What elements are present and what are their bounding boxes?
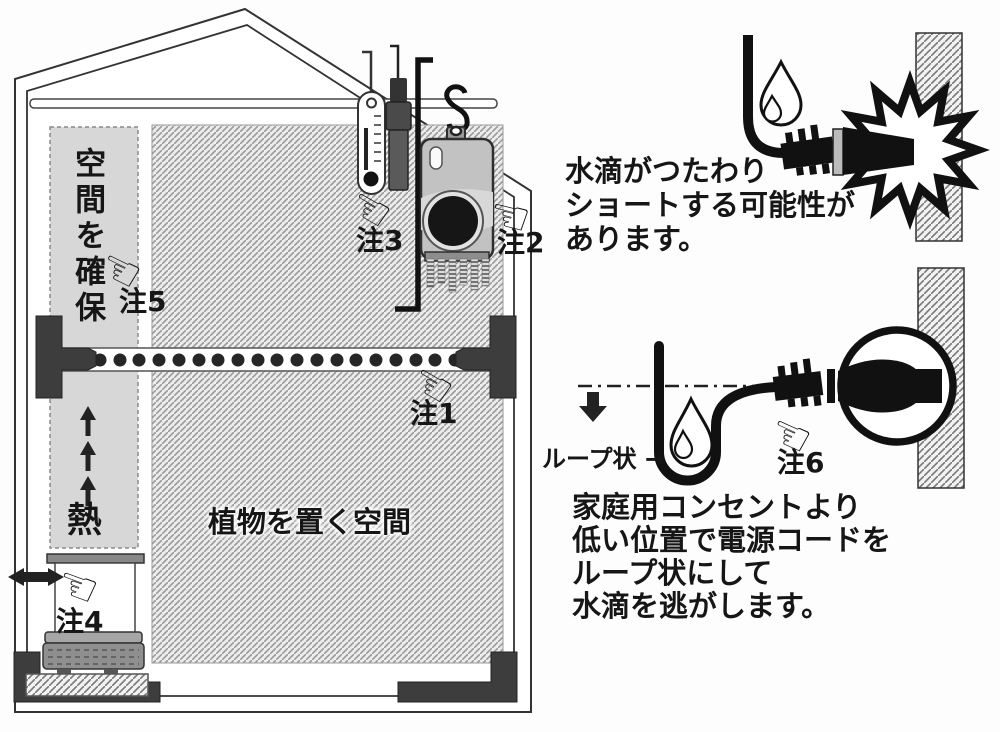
short-circuit-warning-line3: あります。 [565,224,707,256]
note4-label: 注4 [56,607,103,638]
down-arrow-icon [579,392,607,422]
loop-cord-ribs [771,357,824,410]
short-circuit-warning-line2: ショートする可能性が [565,190,855,222]
short-circuit-warning-line1: 水滴がつたわり [565,156,768,188]
diagram-artwork [0,0,1000,732]
thermometer [358,52,385,194]
water-droplet-icon-top [761,62,801,125]
heater-unit [43,632,144,675]
heater-platform [26,674,148,696]
manual-illustration: 空間を確保 ☜ 注5 ☜ 注3 ☜ 注2 ☜ 注1 熱 植物を置く空間 ☜ 注4… [0,0,1000,732]
hanging-rail [30,99,497,108]
drip-loop-text-line3: ループ状にして [572,558,772,590]
note6-label: 注6 [777,448,824,479]
sensor-probe [386,46,411,190]
drip-loop-text-line1: 家庭用コンセントより [572,492,861,524]
note5-label: 注5 [119,287,166,318]
note1-label: 注1 [410,399,457,430]
clearance-cap [47,554,144,563]
clearance-label: 空間を確保 [70,147,104,327]
water-droplet-icon-bottom [671,399,712,466]
loop-shape-label: ループ状 → [542,446,665,472]
plant-area-label: 植物を置く空間 [208,507,411,539]
heat-label: 熱 [67,502,102,541]
note3-label: 注3 [356,226,403,257]
thermostat-device [421,127,493,261]
note2-label: 注2 [497,228,544,259]
drip-loop-text-line4: 水滴を逃がします。 [572,591,830,623]
drip-loop-text-line2: 低い位置で電源コードを [572,525,891,557]
